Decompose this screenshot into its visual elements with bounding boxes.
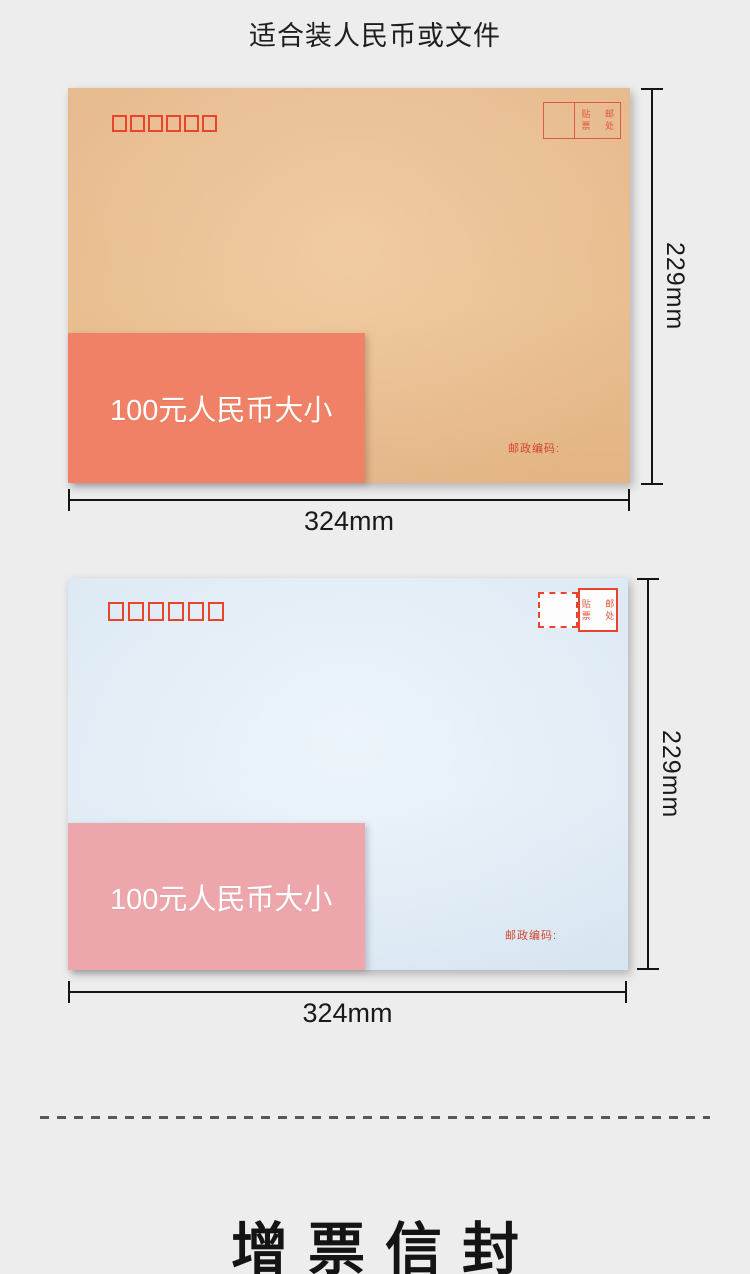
postal-code-box: [130, 115, 145, 132]
height-dimension-label: 229mm: [656, 578, 685, 970]
width-dimension-label: 324mm: [68, 998, 627, 1029]
banknote-size-overlay: 100元人民币大小: [68, 823, 365, 970]
postal-code-box: [202, 115, 217, 132]
banknote-size-label: 100元人民币大小: [68, 876, 332, 918]
postal-code-boxes: [112, 115, 217, 132]
postal-code-box: [128, 602, 144, 621]
blue-envelope: 贴 邮 票 处 100元人民币大小 邮政编码:: [68, 578, 628, 970]
width-dimension-line: [68, 991, 627, 993]
width-dimension-line: [68, 499, 630, 501]
product-series-title: 增票信封: [0, 1204, 750, 1274]
postal-code-box: [108, 602, 124, 621]
postal-code-box: [188, 602, 204, 621]
stamp-box: [544, 103, 575, 138]
height-dimension-line: [651, 88, 653, 485]
width-dimension-label: 324mm: [68, 506, 630, 537]
stamp-label-row: 贴 邮: [576, 600, 621, 609]
postal-code-box: [148, 602, 164, 621]
banknote-size-overlay: 100元人民币大小: [68, 333, 365, 483]
envelope-product-image: 适合装人民币或文件 贴 邮 票 处 100元人民币大小 邮政编码: 229mm …: [0, 0, 750, 1274]
postal-code-box: [148, 115, 163, 132]
stamp-label: 贴 邮 票 处: [578, 588, 618, 632]
section-title: 适合装人民币或文件: [0, 14, 750, 53]
postal-code-boxes: [108, 602, 224, 621]
dashed-divider: [40, 1116, 710, 1119]
stamp-label-row: 贴 邮: [575, 110, 620, 119]
postal-code-label: 邮政编码:: [508, 440, 560, 456]
postal-code-box: [184, 115, 199, 132]
height-dimension-line: [647, 578, 649, 970]
postal-code-label: 邮政编码:: [505, 927, 557, 943]
postal-code-box: [112, 115, 127, 132]
postal-code-box: [168, 602, 184, 621]
stamp-area: 贴 邮 票 处: [538, 588, 618, 632]
height-dimension-label: 229mm: [660, 88, 689, 485]
postal-code-box: [166, 115, 181, 132]
stamp-area: 贴 邮 票 处: [543, 102, 621, 139]
postal-code-box: [208, 602, 224, 621]
stamp-label-row: 票 处: [575, 122, 620, 131]
stamp-label-row: 票 处: [576, 612, 621, 621]
stamp-box: [538, 592, 578, 628]
banknote-size-label: 100元人民币大小: [68, 387, 332, 429]
kraft-envelope: 贴 邮 票 处 100元人民币大小 邮政编码:: [68, 88, 630, 483]
stamp-label: 贴 邮 票 处: [575, 103, 620, 138]
